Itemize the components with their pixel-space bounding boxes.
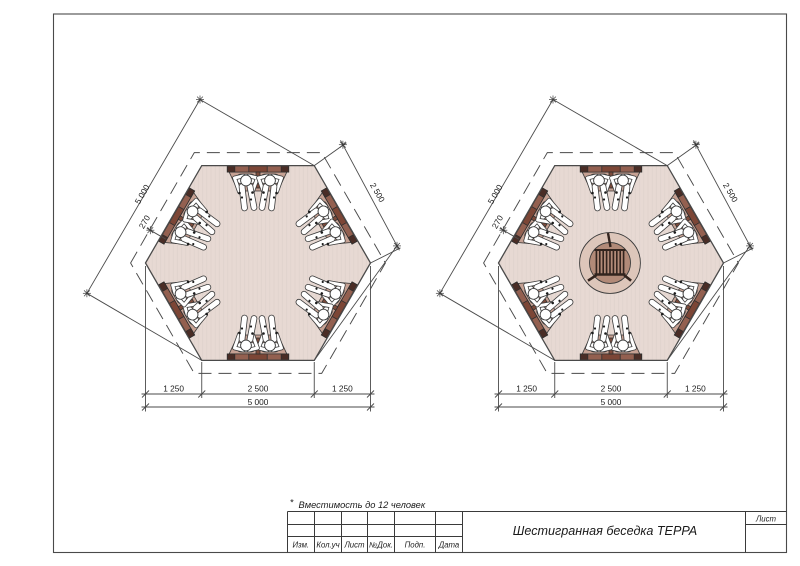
svg-text:Шестигранная беседка ТЕРРА: Шестигранная беседка ТЕРРА (513, 524, 697, 538)
svg-text:Лист: Лист (755, 515, 777, 524)
svg-text:Лист: Лист (343, 541, 365, 550)
svg-text:*: * (290, 498, 294, 508)
svg-text:Изм.: Изм. (292, 541, 309, 550)
svg-text:Кол.уч: Кол.уч (316, 541, 339, 550)
svg-text:Вместимость до 12 человек: Вместимость до 12 человек (299, 500, 426, 510)
svg-text:Дата: Дата (438, 541, 460, 550)
svg-text:Подп.: Подп. (405, 541, 426, 550)
svg-text:№Док.: №Док. (369, 541, 393, 550)
